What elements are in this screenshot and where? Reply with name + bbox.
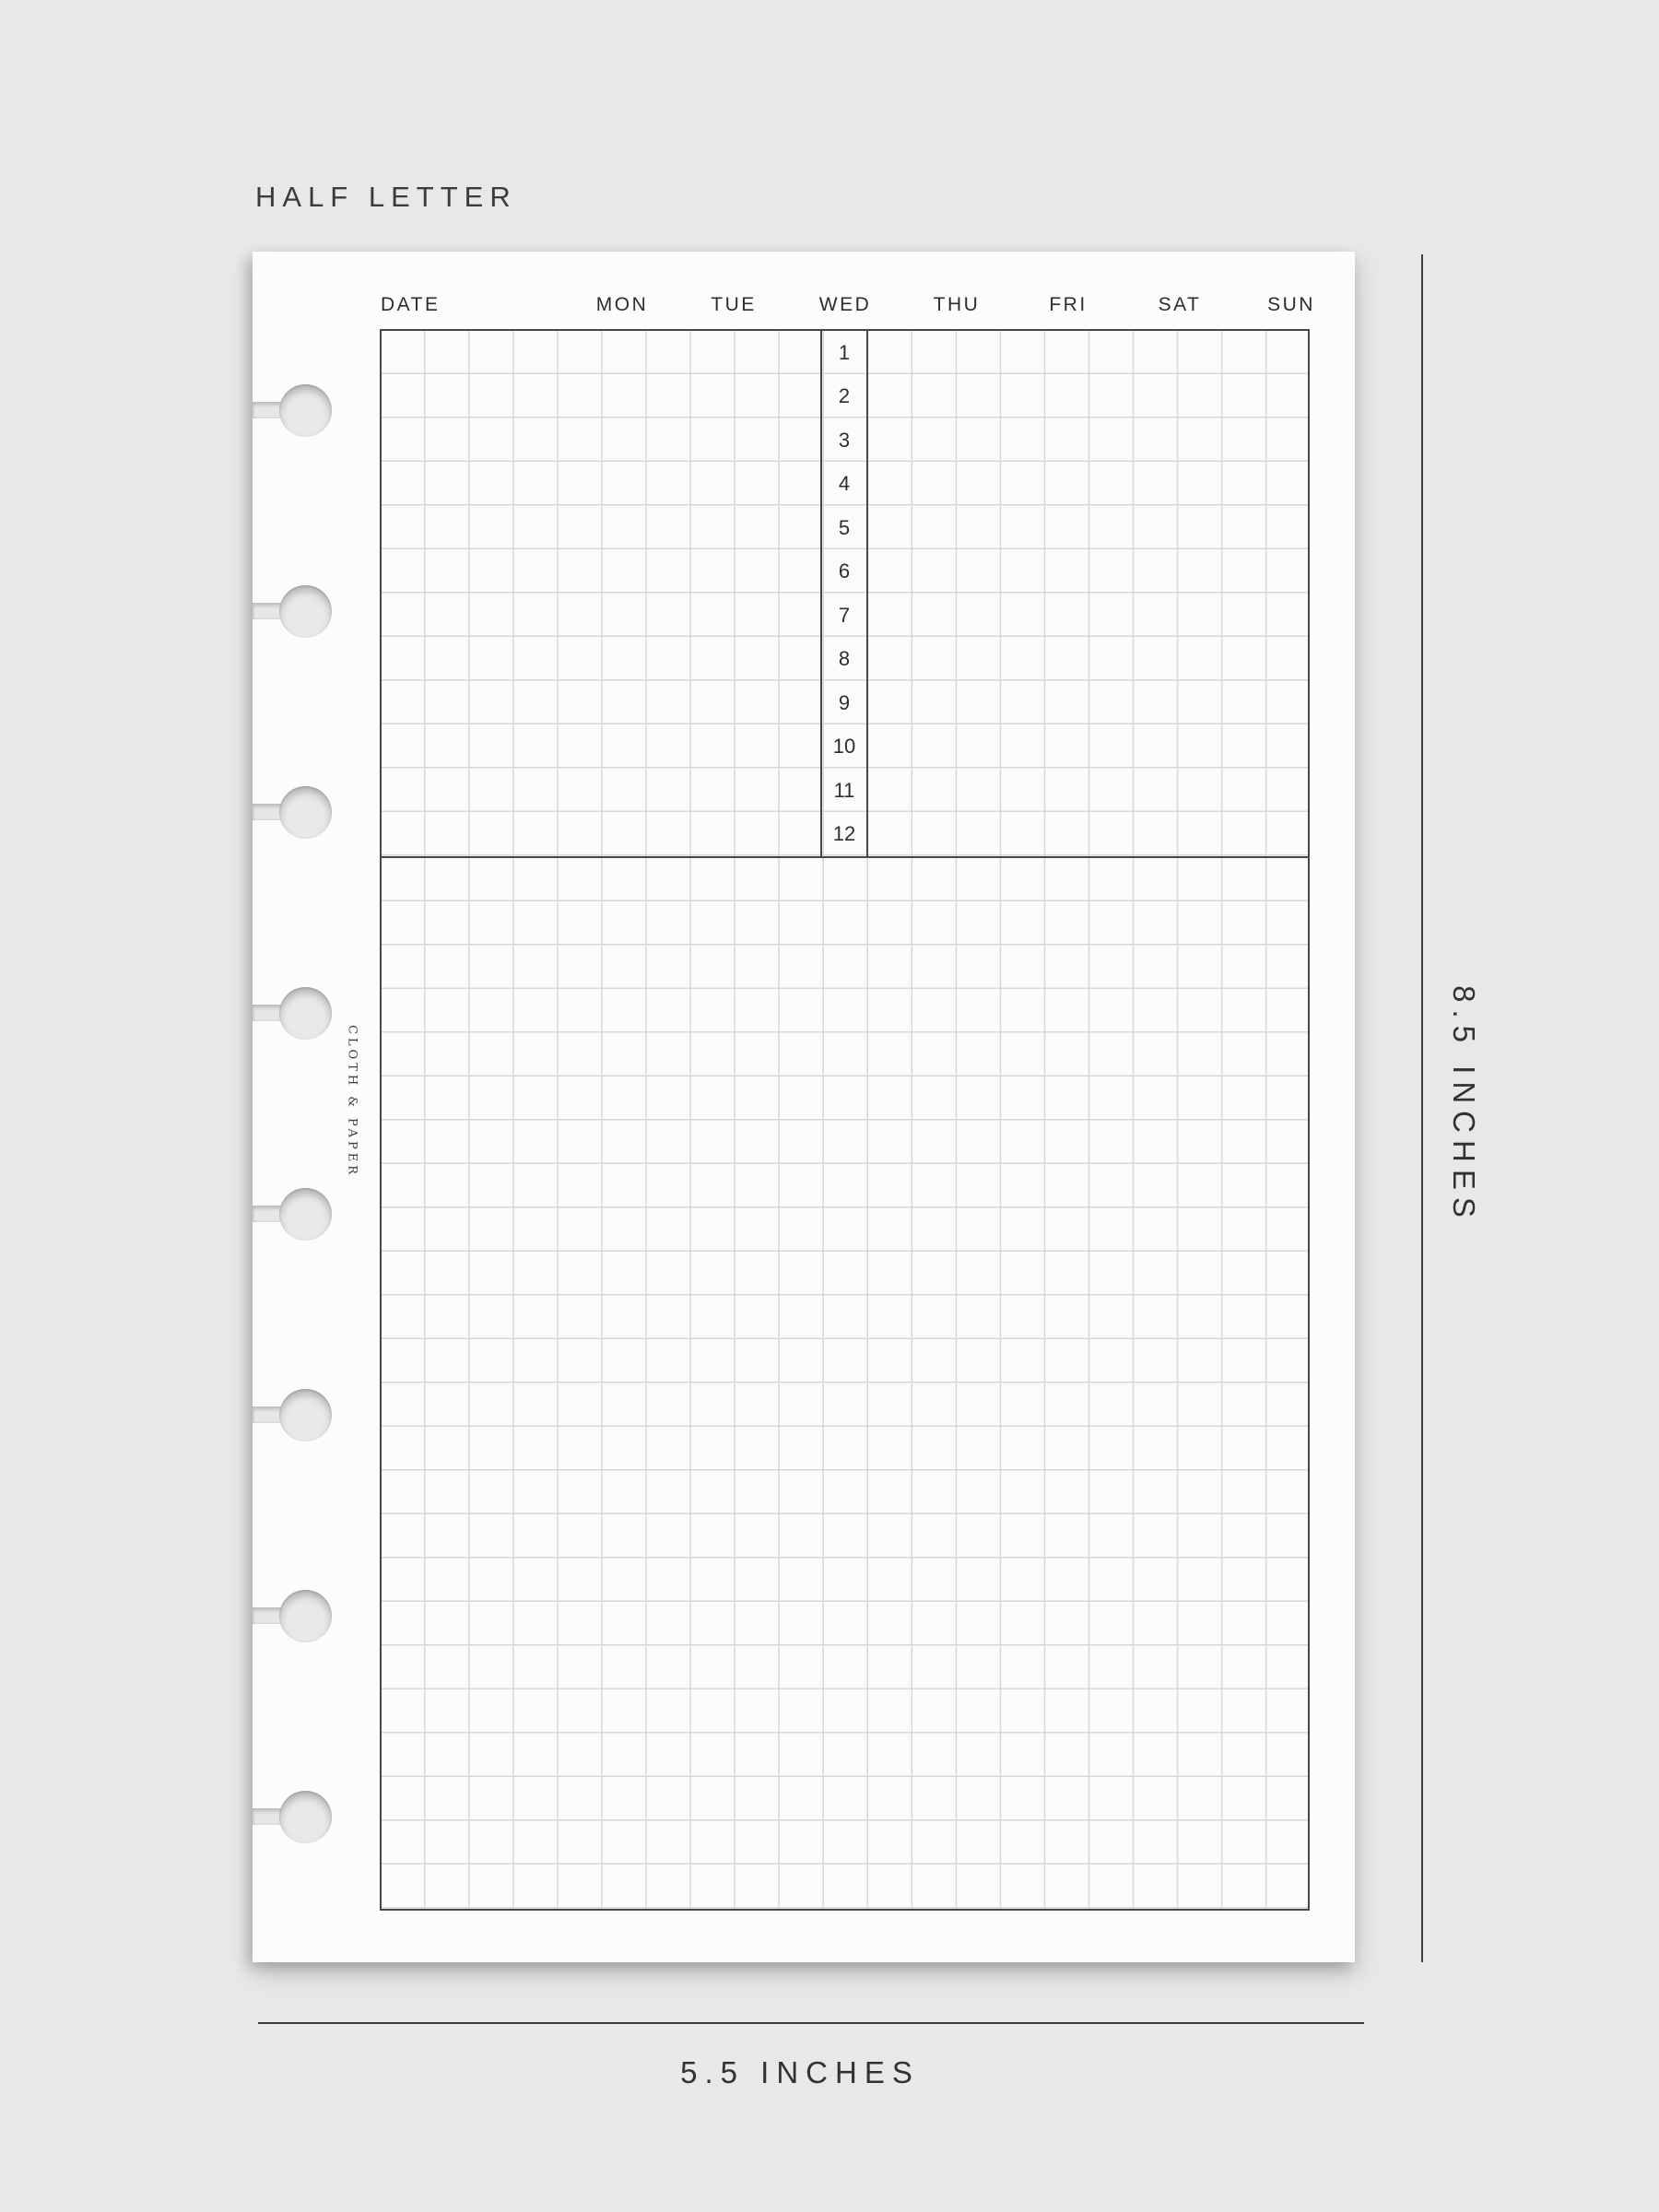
hour-number: 9 bbox=[822, 681, 866, 725]
hour-number: 2 bbox=[822, 375, 866, 419]
binding-hole-circle bbox=[279, 786, 332, 839]
day-label-sun: SUN bbox=[1267, 294, 1315, 316]
width-measure-line bbox=[258, 2022, 1364, 2024]
hour-number: 1 bbox=[822, 331, 866, 375]
hour-number: 8 bbox=[822, 638, 866, 682]
day-label-wed: WED bbox=[819, 294, 872, 316]
hour-number: 12 bbox=[822, 813, 866, 857]
day-label-mon: MON bbox=[596, 294, 649, 316]
hour-number-column: 1 2 3 4 5 6 7 8 9 10 11 12 bbox=[820, 331, 868, 856]
hour-number: 5 bbox=[822, 506, 866, 550]
binding-hole-circle bbox=[279, 585, 332, 638]
hour-number: 4 bbox=[822, 463, 866, 507]
hour-number: 6 bbox=[822, 550, 866, 594]
binding-hole-circle bbox=[279, 987, 332, 1040]
notes-grid-section bbox=[382, 858, 1308, 1909]
height-measure-label: 8.5 INCHES bbox=[1446, 985, 1481, 1225]
day-label-tue: TUE bbox=[711, 294, 757, 316]
day-label-sat: SAT bbox=[1159, 294, 1202, 316]
width-measure-label: 5.5 INCHES bbox=[680, 2055, 920, 2090]
binding-hole-circle bbox=[279, 1590, 332, 1642]
hour-number: 3 bbox=[822, 418, 866, 463]
day-label-fri: FRI bbox=[1049, 294, 1087, 316]
binding-hole-circle bbox=[279, 1188, 332, 1241]
brand-label: CLOTH & PAPER bbox=[346, 1025, 359, 1178]
height-measure-line bbox=[1421, 254, 1423, 1962]
day-label-thu: THU bbox=[934, 294, 981, 316]
binding-hole-circle bbox=[279, 1791, 332, 1843]
binding-hole-circle bbox=[279, 1389, 332, 1441]
binding-hole-circle bbox=[279, 384, 332, 437]
weekly-tracker-grid: 1 2 3 4 5 6 7 8 9 10 11 12 bbox=[382, 331, 1308, 858]
week-header-row: DATE MON TUE WED THU FRI SAT SUN bbox=[380, 290, 1310, 329]
hour-number: 7 bbox=[822, 594, 866, 638]
date-column-label: DATE bbox=[381, 294, 440, 316]
planner-sheet: 1 2 3 4 5 6 7 8 9 10 11 12 bbox=[380, 329, 1310, 1911]
hour-number: 10 bbox=[822, 725, 866, 770]
planner-page: CLOTH & PAPER DATE MON TUE WED THU FRI S… bbox=[253, 252, 1355, 1962]
size-title: HALF LETTER bbox=[255, 182, 517, 213]
hour-number: 11 bbox=[822, 769, 866, 813]
